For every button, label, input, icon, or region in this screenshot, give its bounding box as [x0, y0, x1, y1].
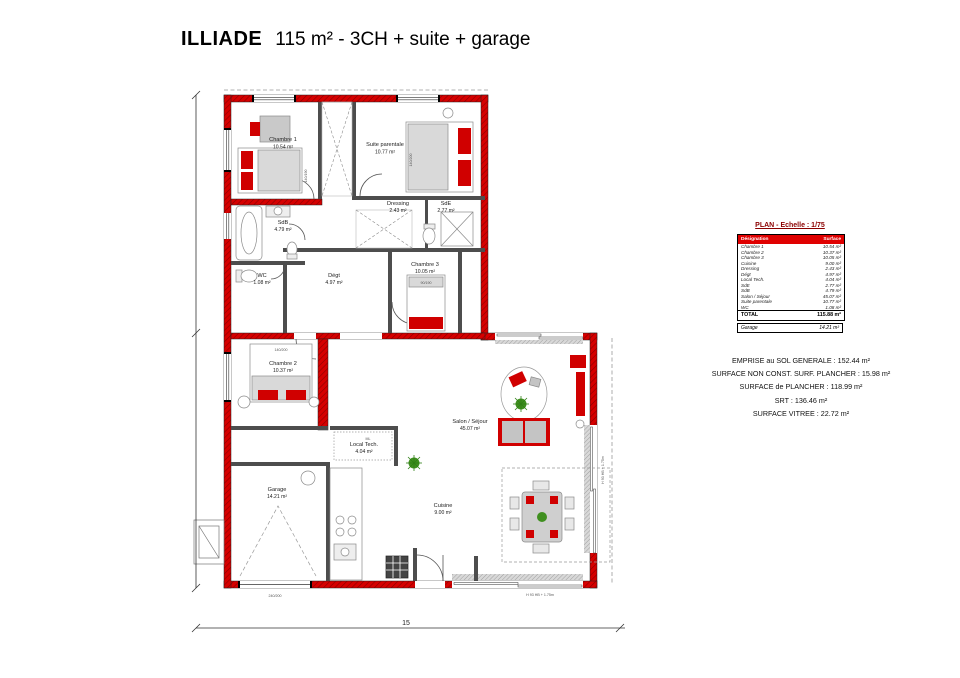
col-surface: Surface [823, 237, 841, 242]
surface-table: Désignation Surface Chambre 110.54 m² Ch… [737, 234, 845, 321]
summary-line: SRT : 136.46 m² [690, 394, 912, 407]
garage-door-size: 240/200 [269, 594, 282, 598]
overall-width-dimension: 15 [402, 620, 410, 627]
model-subtitle: 115 m² - 3CH + suite + garage [275, 29, 530, 51]
room-label-chambre2: Chambre 2 [269, 361, 297, 367]
table-garage-row: Garage 14.21 m² [737, 323, 843, 333]
page: ILLIADE 115 m² - 3CH + suite + garage [0, 0, 960, 678]
col-designation: Désignation [741, 237, 768, 242]
room-label-chambre3: Chambre 3 [411, 262, 439, 268]
room-area-localtech: 4.04 m² [355, 449, 373, 455]
room-label-dressing: Dressing [387, 201, 409, 207]
room-label-cuisine: Cuisine [434, 503, 453, 509]
table-total-row: TOTAL 115.88 m² [738, 310, 844, 320]
room-label-localtech: Local Tech. [350, 442, 379, 448]
bay-annotation-right: H 93 HB + 1.75m [601, 456, 605, 484]
room-area-chambre1: 10.54 m² [273, 145, 293, 151]
legend-panel: PLAN - Echelle : 1/75 Désignation Surfac… [690, 222, 912, 333]
room-label-garage: Garage [268, 487, 287, 493]
page-title: ILLIADE 115 m² - 3CH + suite + garage [181, 28, 531, 51]
room-area-suite: 10.77 m² [375, 150, 395, 156]
floor-plan: Chambre 1 10.54 m² Suite parentale 10.77… [185, 80, 625, 645]
room-area-dressing: 2.43 m² [389, 208, 407, 214]
room-area-chambre2: 10.37 m² [273, 368, 293, 374]
room-label-wc: WC [257, 273, 266, 279]
room-area-sde: 2.77 m² [437, 208, 455, 214]
bed-size-suite: 140/200 [409, 154, 413, 167]
room-area-chambre3: 10.05 m² [415, 269, 435, 275]
room-area-wc: 1.08 m² [253, 280, 271, 286]
room-label-degt: Dégt [328, 273, 340, 279]
bed-size-chambre1: 140/190 [304, 170, 308, 183]
model-name: ILLIADE [181, 28, 262, 51]
summary-line: SURFACE NON CONST. SURF. PLANCHER : 15.9… [690, 367, 912, 380]
summary-line: SURFACE de PLANCHER : 118.99 m² [690, 380, 912, 393]
table-header: Désignation Surface [738, 235, 844, 244]
summary-line: SURFACE VITREE : 22.72 m² [690, 407, 912, 420]
room-label-chambre1: Chambre 1 [269, 137, 297, 143]
washer-label: ML [366, 437, 371, 441]
closets [322, 102, 412, 248]
room-label-suite: Suite parentale [366, 142, 404, 148]
room-area-degt: 4.97 m² [325, 280, 343, 286]
bed-size-chambre3: 90/190 [421, 281, 432, 285]
room-area-sdb: 4.79 m² [274, 227, 292, 233]
surface-summary: EMPRISE au SOL GENERALE : 152.44 m² SURF… [690, 354, 912, 420]
room-label-salon: Salon / Séjour [452, 419, 487, 425]
summary-line: EMPRISE au SOL GENERALE : 152.44 m² [690, 354, 912, 367]
room-area-garage: 14.21 m² [267, 494, 287, 500]
room-area-salon: 45.07 m² [460, 426, 480, 432]
plan-scale-title: PLAN - Echelle : 1/75 [737, 222, 843, 229]
room-label-sde: SdE [441, 201, 452, 207]
bay-annotation-bottom: H 93 HB + 1.75m [526, 593, 554, 597]
room-label-sdb: SdB [278, 220, 289, 226]
room-area-cuisine: 9.00 m² [434, 510, 452, 516]
bed-size-chambre2: 140/200 [275, 348, 288, 352]
